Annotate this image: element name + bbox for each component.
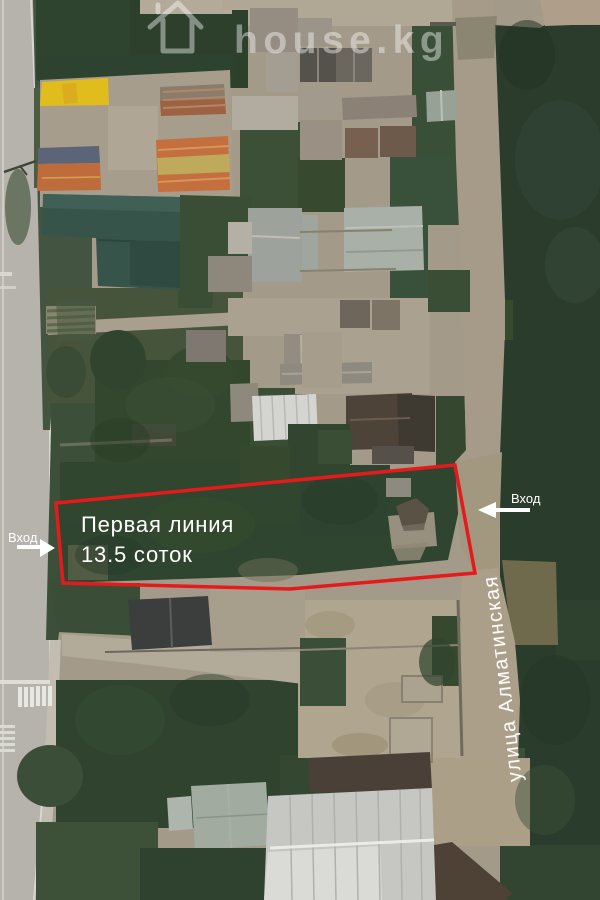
svg-text:house.kg: house.kg <box>234 19 449 62</box>
svg-text:Вход: Вход <box>8 530 38 545</box>
svg-text:13.5 соток: 13.5 соток <box>81 542 193 567</box>
svg-text:Вход: Вход <box>511 491 541 506</box>
svg-text:Первая линия: Первая линия <box>81 512 234 537</box>
